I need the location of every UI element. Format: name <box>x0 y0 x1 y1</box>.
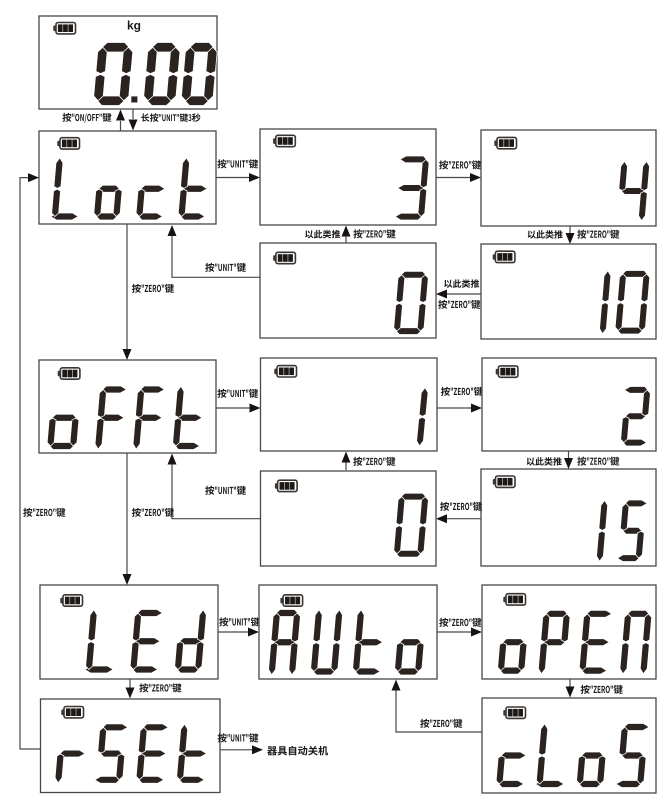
svg-text:kg: kg <box>127 19 141 33</box>
